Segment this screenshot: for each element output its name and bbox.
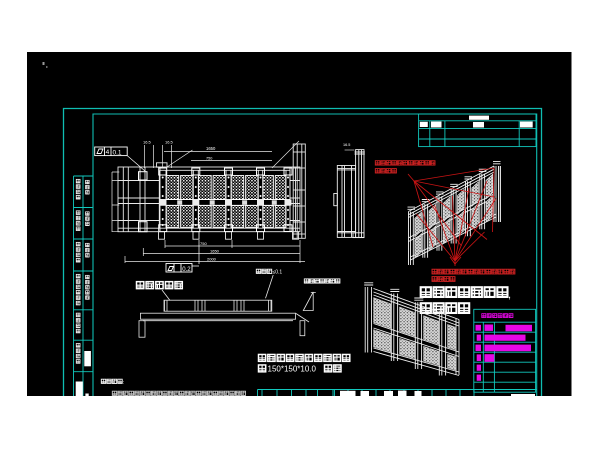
svg-text:4: 4 — [106, 149, 110, 156]
svg-text:0.1: 0.1 — [113, 149, 122, 156]
svg-text:16.5: 16.5 — [165, 139, 174, 144]
svg-text:≤0.1: ≤0.1 — [273, 270, 283, 276]
svg-text:750: 750 — [200, 241, 207, 246]
svg-text:1650: 1650 — [206, 146, 216, 151]
svg-text:0.2: 0.2 — [182, 267, 191, 273]
svg-text:150*150*10.0: 150*150*10.0 — [268, 365, 317, 374]
svg-text:2000: 2000 — [207, 256, 217, 261]
svg-text:,: , — [508, 289, 511, 301]
svg-text:1650: 1650 — [210, 248, 220, 253]
svg-text::: : — [123, 380, 124, 386]
svg-text:750: 750 — [206, 156, 212, 160]
svg-text:16.5: 16.5 — [343, 143, 350, 147]
svg-text:16.5: 16.5 — [143, 139, 152, 144]
